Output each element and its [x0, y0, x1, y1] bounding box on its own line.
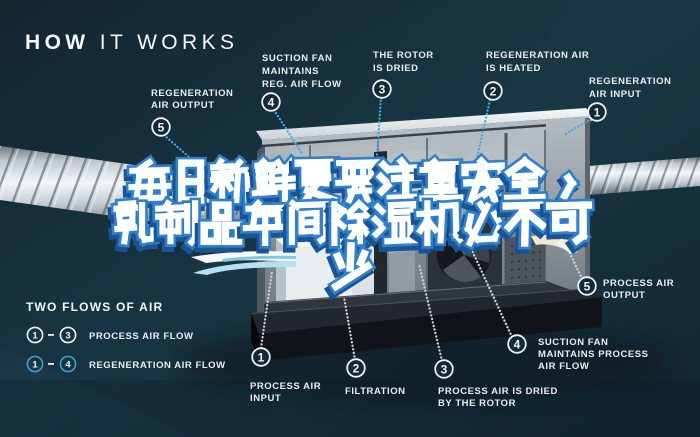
svg-text:MAINTAINS PROCESS: MAINTAINS PROCESS [538, 349, 649, 360]
svg-text:4: 4 [268, 96, 275, 110]
svg-text:TWO FLOWS OF AIR: TWO FLOWS OF AIR [26, 300, 163, 314]
svg-text:3: 3 [441, 363, 448, 377]
svg-text:PROCESS AIR FLOW: PROCESS AIR FLOW [89, 331, 194, 342]
svg-text:REGENERATION: REGENERATION [589, 76, 671, 87]
svg-text:REGENERATION: REGENERATION [151, 88, 233, 99]
svg-text:AIR FLOW: AIR FLOW [538, 361, 589, 372]
svg-text:1: 1 [258, 351, 265, 365]
svg-text:REG. AIR FLOW: REG. AIR FLOW [262, 79, 342, 90]
svg-text:4: 4 [65, 360, 71, 371]
svg-text:4: 4 [514, 338, 521, 352]
svg-text:IS DRIED: IS DRIED [373, 63, 419, 74]
svg-text:3: 3 [379, 83, 386, 97]
svg-text:1: 1 [32, 331, 38, 342]
svg-text:5: 5 [584, 280, 591, 294]
svg-text:IS HEATED: IS HEATED [486, 63, 541, 74]
svg-text:REGENERATION AIR FLOW: REGENERATION AIR FLOW [89, 360, 226, 371]
svg-text:SUCTION FAN: SUCTION FAN [538, 337, 608, 348]
svg-text:INPUT: INPUT [250, 393, 281, 404]
svg-text:3: 3 [65, 331, 70, 342]
svg-text:5: 5 [158, 121, 165, 135]
svg-text:HOW IT WORKS: HOW IT WORKS [25, 31, 238, 54]
svg-text:FILTRATION: FILTRATION [345, 386, 406, 397]
svg-text:PROCESS AIR IS DRIED: PROCESS AIR IS DRIED [438, 386, 558, 397]
svg-text:AIR OUTPUT: AIR OUTPUT [151, 100, 215, 111]
svg-text:SUCTION FAN: SUCTION FAN [262, 53, 332, 64]
svg-text:PROCESS AIR: PROCESS AIR [250, 381, 321, 392]
svg-text:1: 1 [32, 360, 38, 371]
svg-text:AIR INPUT: AIR INPUT [589, 89, 641, 100]
svg-text:2: 2 [353, 362, 360, 376]
svg-text:MAINTAINS: MAINTAINS [262, 66, 319, 77]
svg-text:PROCESS AIR: PROCESS AIR [603, 278, 674, 289]
svg-text:OUTPUT: OUTPUT [603, 290, 645, 301]
svg-text:REGENERATION AIR: REGENERATION AIR [486, 50, 589, 61]
svg-text:THE ROTOR: THE ROTOR [373, 50, 434, 61]
svg-text:BY THE ROTOR: BY THE ROTOR [438, 398, 516, 409]
svg-text:2: 2 [490, 85, 497, 99]
svg-text:1: 1 [594, 106, 601, 120]
